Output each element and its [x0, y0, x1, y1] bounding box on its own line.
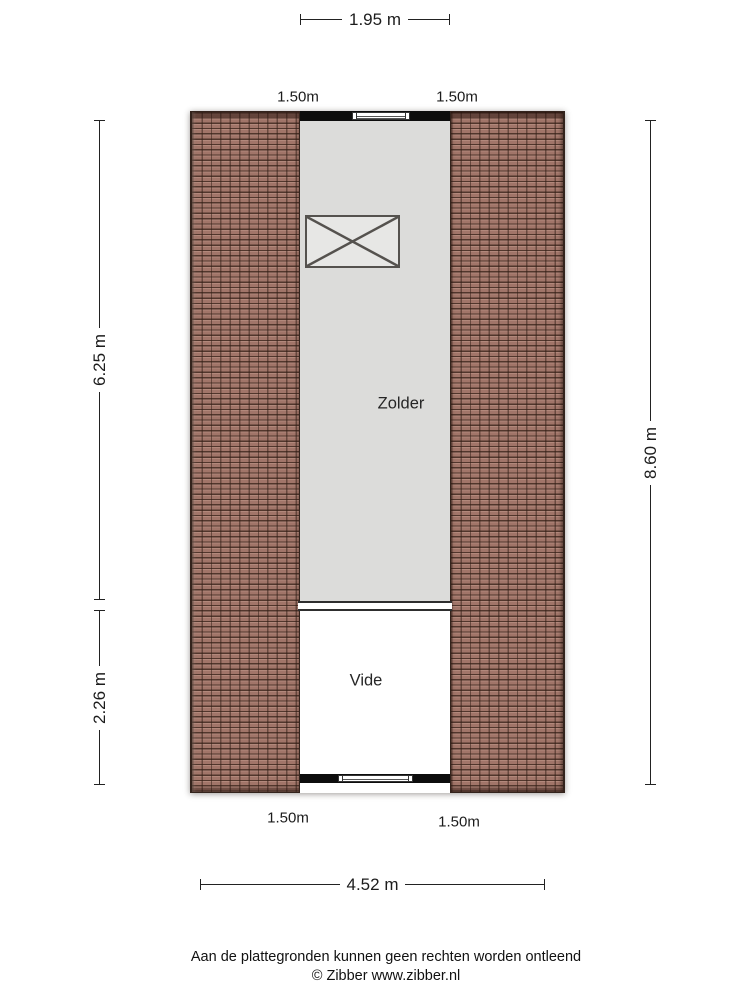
- railing: [298, 601, 452, 611]
- diagonal-cross-icon: [307, 217, 398, 266]
- dim-label-bottom-width: 4.52 m: [340, 875, 406, 895]
- dim-right: 8.60 m: [645, 120, 656, 785]
- dim-tick: [544, 879, 545, 890]
- dim-label-top-roof-left: 1.50m: [277, 89, 319, 106]
- roof-left: [190, 111, 300, 793]
- room-label-vide: Vide: [350, 672, 383, 691]
- floorplan-canvas: Zolder Vide 1.95 m 1.50m 1.50m 6.25 m 2.…: [0, 0, 750, 1000]
- room-label-zolder: Zolder: [378, 395, 425, 414]
- dim-label-left-upper: 6.25 m: [90, 328, 110, 392]
- dim-label-bottom-roof-right: 1.50m: [438, 814, 480, 831]
- dim-tick: [449, 14, 450, 25]
- footer: Aan de plattegronden kunnen geen rechten…: [22, 948, 750, 986]
- footer-disclaimer: Aan de plattegronden kunnen geen rechten…: [22, 948, 750, 967]
- dim-tick: [94, 120, 105, 121]
- dim-tick: [645, 120, 656, 121]
- plan-central-strip: [300, 111, 450, 793]
- footer-copyright: © Zibber www.zibber.nl: [22, 967, 750, 986]
- dim-left-upper: 6.25 m: [94, 120, 105, 600]
- roof-right: [450, 111, 565, 793]
- crossed-opening-marker: [305, 215, 400, 268]
- window-glazing: [343, 775, 408, 782]
- dim-label-bottom-roof-left: 1.50m: [267, 810, 309, 827]
- dim-tick: [94, 610, 105, 611]
- dim-label-left-lower: 2.26 m: [90, 666, 110, 730]
- dim-left-lower: 2.26 m: [94, 610, 105, 785]
- room-zolder-floor: [300, 121, 450, 601]
- dim-label-right: 8.60 m: [641, 421, 661, 485]
- dim-bottom-width: 4.52 m: [200, 876, 545, 894]
- window-bottom: [338, 775, 413, 782]
- dim-tick: [200, 879, 201, 890]
- window-post-right: [408, 775, 413, 782]
- wall-top: [300, 111, 450, 121]
- dim-label-top-roof-right: 1.50m: [436, 89, 478, 106]
- window-top: [352, 112, 410, 120]
- dim-top-width: 1.95 m: [300, 11, 450, 29]
- dim-tick: [94, 599, 105, 600]
- wall-bottom: [300, 774, 450, 783]
- dim-tick: [645, 784, 656, 785]
- window-glazing: [357, 112, 405, 120]
- window-post-right: [405, 112, 410, 120]
- dim-label-top-width: 1.95 m: [342, 10, 408, 30]
- dim-tick: [94, 784, 105, 785]
- dim-tick: [300, 14, 301, 25]
